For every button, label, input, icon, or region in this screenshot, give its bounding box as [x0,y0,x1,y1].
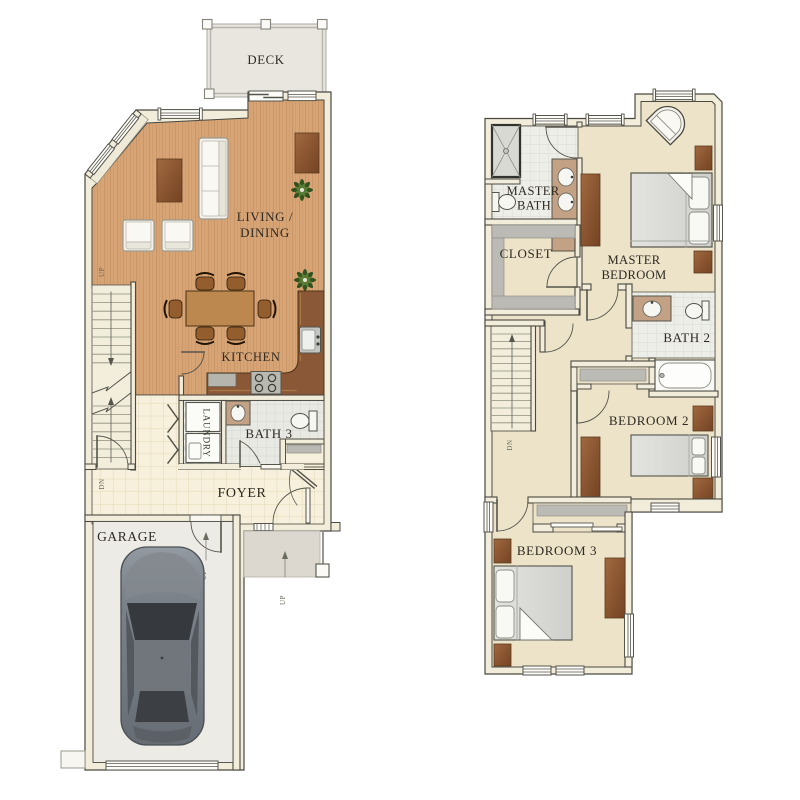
svg-text:BEDROOM 3: BEDROOM 3 [517,543,597,558]
svg-text:FOYER: FOYER [218,486,267,501]
svg-text:MASTER: MASTER [608,253,661,267]
svg-text:DECK: DECK [247,53,284,67]
svg-text:DN: DN [506,439,514,450]
svg-text:BEDROOM 2: BEDROOM 2 [609,413,689,428]
svg-text:LIVING /: LIVING / [237,209,293,224]
svg-text:MASTER: MASTER [507,184,560,198]
svg-text:CLOSET: CLOSET [500,246,553,261]
svg-text:BATH 2: BATH 2 [663,330,710,345]
svg-text:BATH: BATH [517,199,551,213]
svg-text:DINING: DINING [240,225,290,240]
svg-text:UP: UP [279,595,287,605]
svg-text:LAUNDRY: LAUNDRY [202,408,212,457]
svg-text:BEDROOM: BEDROOM [601,268,666,282]
svg-text:DN: DN [98,478,106,489]
svg-text:UP: UP [98,267,106,277]
svg-text:GARAGE: GARAGE [97,529,157,544]
svg-text:KITCHEN: KITCHEN [221,350,280,364]
